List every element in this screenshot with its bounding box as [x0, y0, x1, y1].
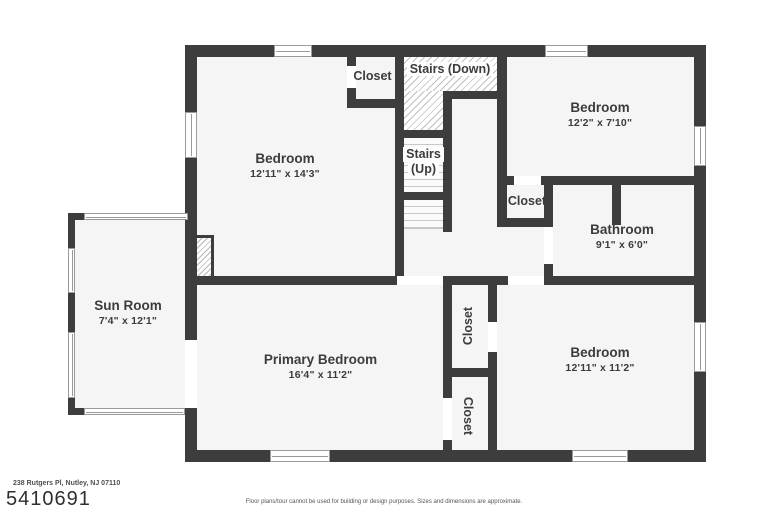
room-name: Primary Bedroom — [208, 351, 433, 369]
window — [270, 450, 330, 462]
stairs-up-treads-lower — [404, 200, 443, 229]
wall-outer-left-upper — [185, 45, 197, 340]
wall-outer-top — [185, 45, 706, 57]
window — [274, 45, 312, 57]
wall-outer-right — [694, 45, 706, 462]
window — [694, 126, 706, 166]
stairs-up-label: Stairs (Up) — [396, 147, 451, 177]
window — [68, 332, 75, 398]
window — [68, 248, 75, 293]
wall-vcloset-right-upper — [488, 276, 497, 322]
room-label-primary-bedroom: Primary Bedroom 16'4" x 11'2" — [208, 351, 433, 382]
stairs-up-text-2: (Up) — [408, 162, 439, 177]
closet-label-mid: Closet — [498, 194, 556, 208]
wall-stairs-mid — [397, 192, 452, 200]
wall-hallway-mid — [443, 276, 508, 285]
room-name: Bedroom — [505, 344, 695, 362]
room-dims: 12'11" x 14'3" — [185, 168, 385, 182]
door-opening-bedroom-br — [508, 276, 544, 285]
floor-plan: Bedroom 12'11" x 14'3" Bedroom 12'2" x 7… — [0, 0, 768, 512]
room-name: Bathroom — [553, 221, 691, 239]
stairs-down-label: Stairs (Down) — [399, 62, 501, 76]
door-opening-bedroom-tr — [514, 176, 541, 185]
room-dims: 9'1" x 6'0" — [553, 239, 691, 253]
stairs-down-text: Stairs (Down) — [407, 62, 494, 76]
room-label-bedroom-top-left: Bedroom 12'11" x 14'3" — [185, 150, 385, 181]
closet-label-vertical-top: Closet — [460, 286, 476, 366]
room-label-bedroom-top-right: Bedroom 12'2" x 7'10" — [505, 99, 695, 130]
room-dims: 16'4" x 11'2" — [208, 369, 433, 383]
footer-address: 238 Rutgers Pl, Nutley, NJ 07110 — [13, 480, 120, 487]
room-dims: 12'11" x 11'2" — [505, 362, 695, 376]
wall-bedroom-tr-south-right — [541, 176, 706, 185]
wall-bathroom-stub — [612, 184, 621, 225]
wall-closet-top-stub — [347, 57, 356, 66]
room-label-bedroom-bottom-right: Bedroom 12'11" x 11'2" — [505, 344, 695, 375]
room-label-bathroom: Bathroom 9'1" x 6'0" — [553, 221, 691, 252]
window — [572, 450, 628, 462]
room-dims: 7'4" x 12'1" — [72, 315, 184, 329]
wall-hallway-west — [186, 276, 397, 285]
door-opening-vcloset-top — [488, 322, 497, 352]
closet-label-vertical-bottom: Closet — [460, 376, 476, 456]
wall-outer-left-lower — [185, 408, 197, 462]
door-opening-hallway — [397, 276, 443, 285]
wall-stairs-up-top — [404, 130, 452, 138]
room-label-sun-room: Sun Room 7'4" x 12'1" — [72, 297, 184, 328]
window — [84, 408, 185, 415]
room-dims: 12'2" x 7'10" — [505, 117, 695, 131]
door-opening-sunroom — [185, 340, 197, 408]
wall-bathroom-south — [544, 276, 706, 285]
chimney-hatch — [197, 235, 214, 279]
window — [84, 213, 188, 220]
stairs-up-text-1: Stairs — [403, 147, 444, 162]
room-name: Sun Room — [72, 297, 184, 315]
door-opening-bathroom — [544, 227, 553, 264]
wall-vcloset-left-lower — [443, 440, 452, 462]
wall-closet-mid-bottom — [497, 218, 553, 227]
closet-label-top: Closet — [345, 69, 400, 83]
window — [694, 322, 706, 372]
footer-disclaimer: Floor plans/tour cannot be used for buil… — [0, 499, 768, 505]
door-opening-vcloset-bottom — [443, 398, 452, 440]
window — [545, 45, 588, 57]
wall-closet-top-bottom — [347, 99, 397, 108]
wall-vcloset-left-upper — [443, 276, 452, 398]
stairs-down-area-lower — [404, 91, 443, 130]
wall-bedroom-tr-south-left — [497, 176, 514, 185]
room-name: Bedroom — [505, 99, 695, 117]
room-name: Bedroom — [185, 150, 385, 168]
